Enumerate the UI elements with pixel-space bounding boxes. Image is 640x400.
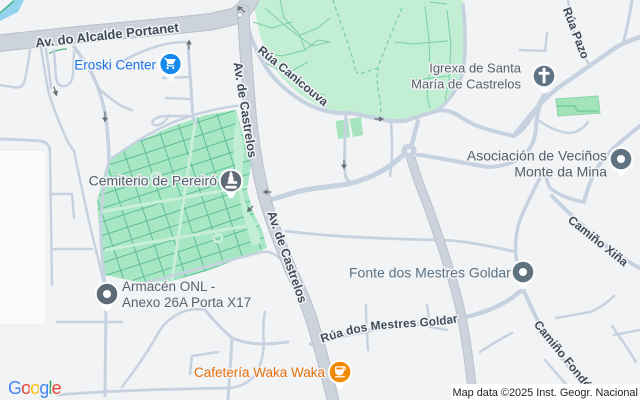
svg-text:Armacén ONL -: Armacén ONL - <box>122 279 215 294</box>
svg-text:Eroski Center: Eroski Center <box>74 58 156 73</box>
svg-text:Monte da Mina: Monte da Mina <box>514 164 607 180</box>
svg-text:Cafetería Waka Waka: Cafetería Waka Waka <box>194 365 326 380</box>
svg-text:Google: Google <box>8 378 62 398</box>
svg-text:Asociación de Veciños: Asociación de Veciños <box>467 148 607 164</box>
svg-text:Fonte dos Mestres Goldar: Fonte dos Mestres Goldar <box>349 265 511 281</box>
svg-text:Igrexa de Santa: Igrexa de Santa <box>429 61 522 76</box>
svg-text:Cemiterio de Pereiró: Cemiterio de Pereiró <box>89 173 218 189</box>
svg-text:María de Castrelos: María de Castrelos <box>411 77 521 92</box>
svg-text:Map data ©2025 Inst. Geogr. Na: Map data ©2025 Inst. Geogr. Nacional <box>453 387 638 399</box>
svg-text:Anexo 26A Porta X17: Anexo 26A Porta X17 <box>122 295 251 310</box>
